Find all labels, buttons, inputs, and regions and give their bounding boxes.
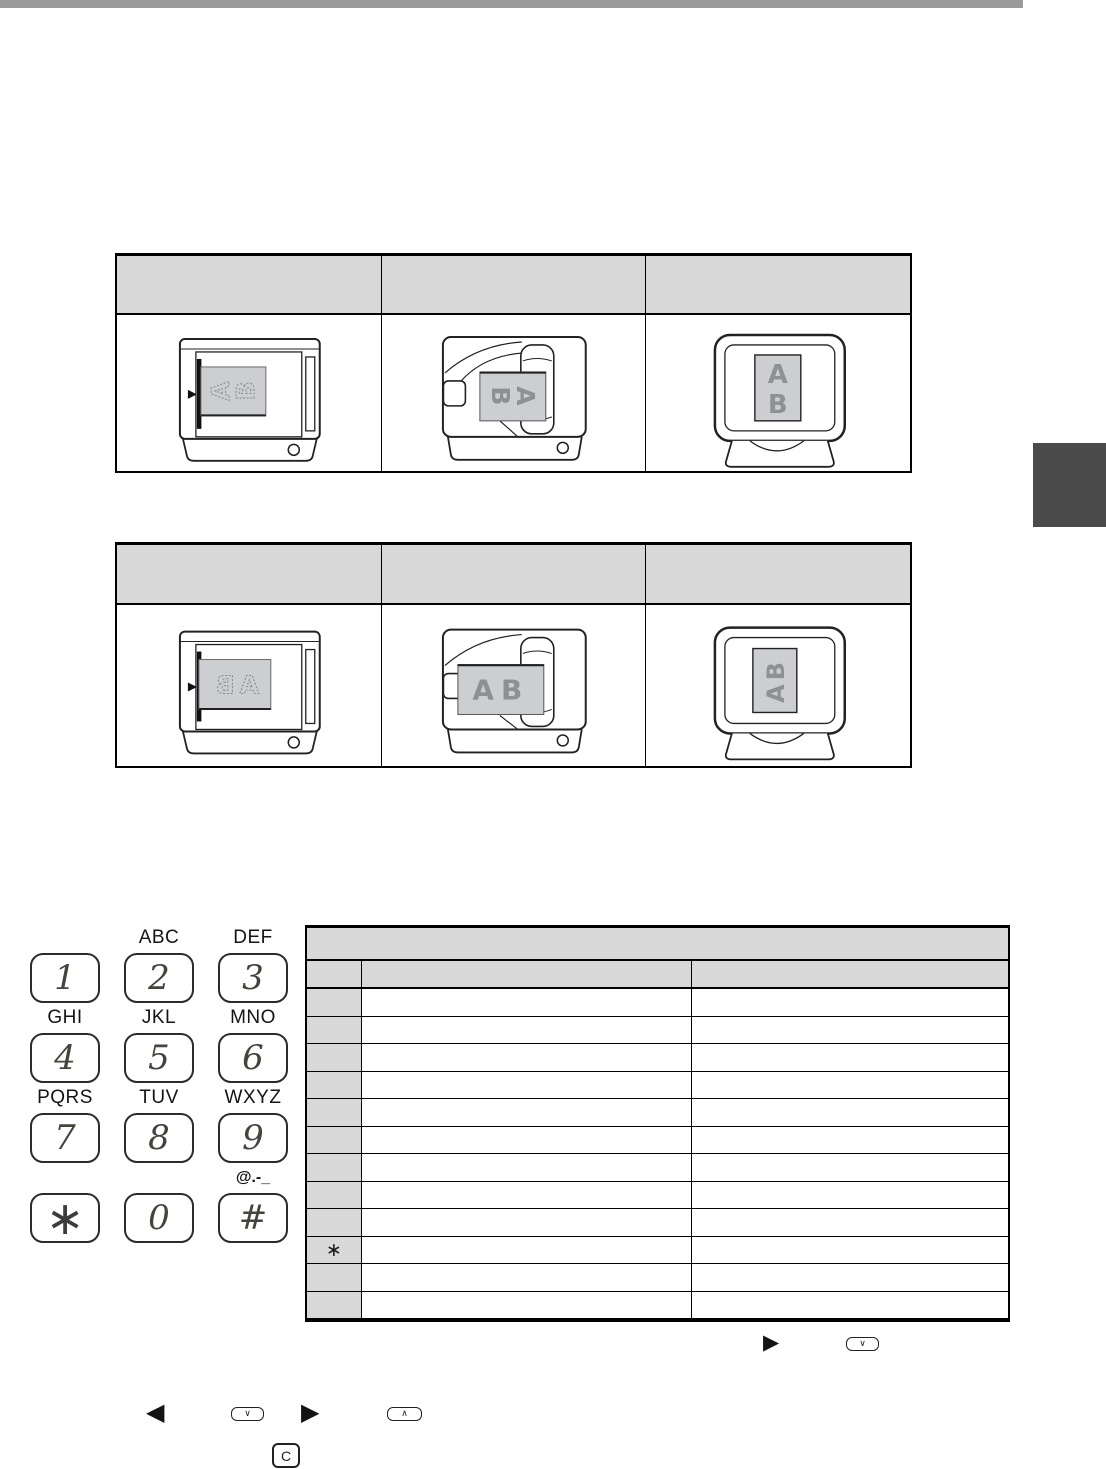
key-2: 2 <box>124 953 194 1003</box>
header-cell <box>382 256 647 313</box>
flatbed-scanner-illustration: A B <box>117 315 382 471</box>
monitor-result-illustration: A B <box>646 315 910 471</box>
table-row-star-key: ∗ <box>307 1237 1008 1265</box>
key-2-letters: ABC <box>124 927 194 949</box>
header-cell <box>646 256 910 313</box>
table-row <box>307 1072 1008 1100</box>
key-4-letters: GHI <box>30 1007 100 1029</box>
clear-key-icon: C <box>272 1443 300 1468</box>
table-row <box>307 1209 1008 1237</box>
right-arrow-icon: ▶ <box>301 1400 319 1424</box>
character-assignment-table: ∗ <box>305 925 1010 1322</box>
key-1-letters <box>30 927 100 949</box>
key-7-letters: PQRS <box>30 1087 100 1109</box>
flatbed-scanner-illustration: AB <box>117 605 382 766</box>
screen-letter-a: A <box>768 360 788 390</box>
orientation-table-portrait: A B <box>115 253 912 473</box>
character-table-column-headers <box>307 961 1008 989</box>
paper-word-ab: AB <box>472 673 529 706</box>
key-9-letters: WXYZ <box>218 1087 288 1109</box>
table-row <box>307 1292 1008 1319</box>
key-hash-letters: @.-_ <box>218 1167 288 1189</box>
key-5-letters: JKL <box>124 1007 194 1029</box>
screen-letter-b: B <box>768 390 788 420</box>
document-feeder-illustration: AB <box>382 605 647 766</box>
header-cell <box>117 256 382 313</box>
table-row <box>307 1264 1008 1292</box>
paper-word-ab-mirrored: AB <box>211 670 259 699</box>
orientation-table-landscape: AB <box>115 542 912 768</box>
header-cell <box>117 545 382 603</box>
table-row <box>307 1182 1008 1210</box>
table-row <box>307 1099 1008 1127</box>
left-arrow-icon: ◀ <box>146 1400 164 1424</box>
key-3-letters: DEF <box>218 927 288 949</box>
key-star-letters <box>30 1167 100 1189</box>
paper-letter-b: B <box>231 382 260 401</box>
key-1: 1 <box>30 953 100 1003</box>
key-0: 0 <box>124 1193 194 1243</box>
key-star: ∗ <box>30 1193 100 1243</box>
document-feeder-illustration: A B <box>382 315 647 471</box>
key-6-letters: MNO <box>218 1007 288 1029</box>
down-key-icon: ∨ <box>846 1337 879 1351</box>
table-row <box>307 989 1008 1017</box>
table-row <box>307 1044 1008 1072</box>
character-table-title <box>307 928 1008 961</box>
key-8: 8 <box>124 1113 194 1163</box>
key-6: 6 <box>218 1033 288 1083</box>
orientation-table-1-header <box>117 256 910 315</box>
chapter-edge-tab <box>1033 443 1106 527</box>
manual-page: A B <box>0 0 1106 1469</box>
key-0-letters <box>124 1167 194 1189</box>
key-7: 7 <box>30 1113 100 1163</box>
screen-word-ab-rotated: AB <box>762 658 790 703</box>
bullet-arrow-icon: ▶ <box>763 1332 779 1353</box>
key-3: 3 <box>218 953 288 1003</box>
table-row <box>307 1154 1008 1182</box>
table-row <box>307 1017 1008 1045</box>
header-cell <box>646 545 910 603</box>
down-key-icon: ∨ <box>231 1407 264 1421</box>
monitor-result-illustration: AB <box>646 605 910 766</box>
key-9: 9 <box>218 1113 288 1163</box>
numeric-keypad: ABC DEF 1 2 3 GHI JKL MNO 4 5 6 PQRS TUV… <box>30 927 288 1243</box>
page-top-rule <box>0 0 1023 8</box>
key-4: 4 <box>30 1033 100 1083</box>
header-cell <box>382 545 647 603</box>
key-8-letters: TUV <box>124 1087 194 1109</box>
key-hash: # <box>218 1193 288 1243</box>
orientation-table-2-header <box>117 545 910 605</box>
table-row <box>307 1127 1008 1155</box>
up-key-icon: ∧ <box>387 1407 422 1421</box>
paper-letter-b: B <box>486 387 515 406</box>
key-5: 5 <box>124 1033 194 1083</box>
